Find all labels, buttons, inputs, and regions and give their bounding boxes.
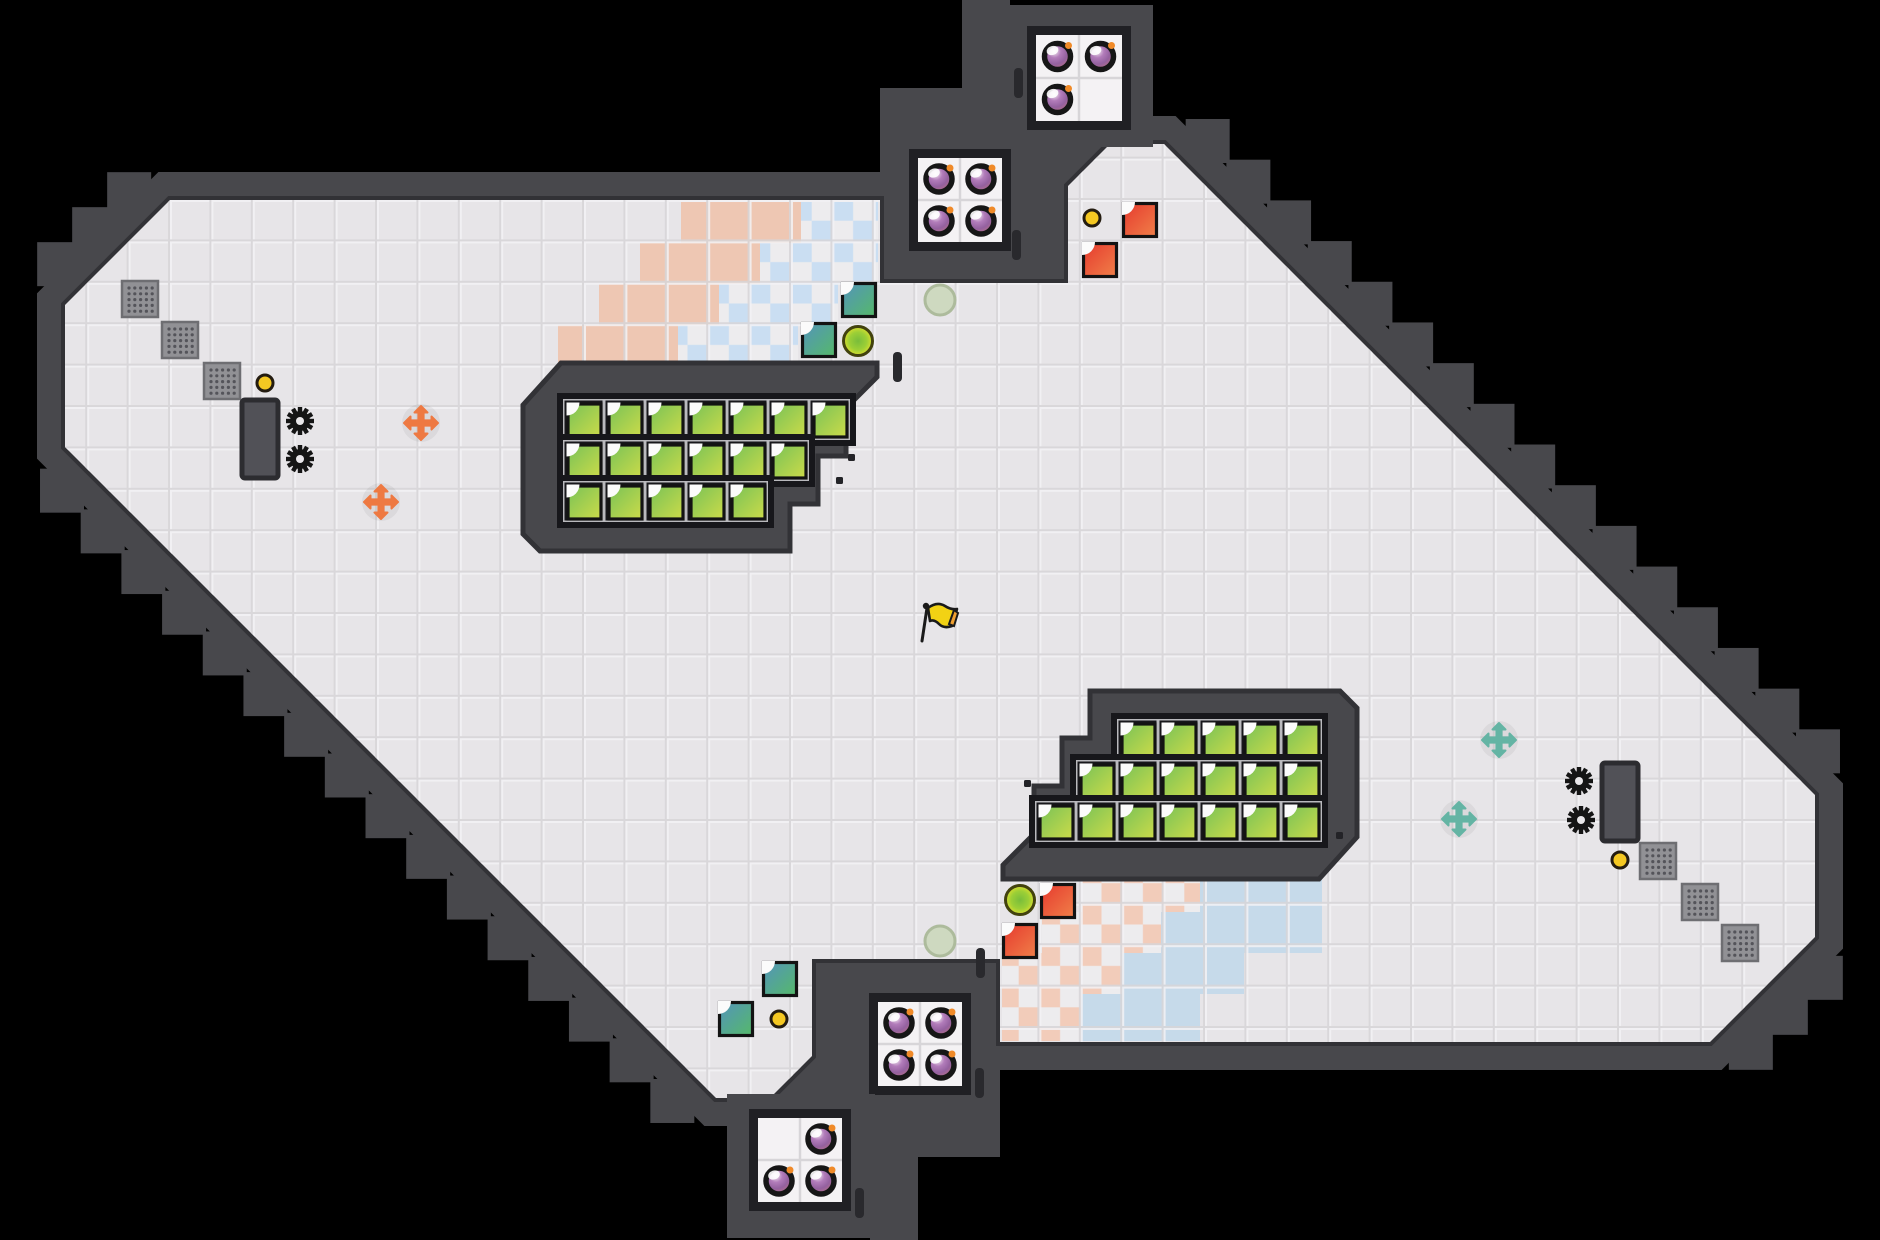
bomb-room (909, 149, 1011, 251)
wall-block (870, 1150, 918, 1240)
bomb-fuse (787, 1167, 794, 1174)
green-tile (1244, 805, 1279, 840)
wall-step (325, 753, 369, 797)
bomb-fuse (1065, 42, 1072, 49)
wall-notch (1012, 230, 1021, 260)
bomb-fuse (949, 1051, 956, 1058)
game-map-canvas[interactable] (0, 0, 1880, 1240)
wall-step (1633, 567, 1677, 611)
bomb-icon (928, 1051, 956, 1079)
green-tile (608, 485, 643, 520)
green-tile (1244, 723, 1279, 758)
wall-notch (855, 1188, 864, 1218)
green-tile (1244, 764, 1279, 799)
door-panel (1602, 763, 1638, 841)
wall-step (284, 713, 328, 757)
green-tile (1285, 805, 1320, 840)
coin-icon (257, 375, 273, 391)
bomb-room (727, 1094, 875, 1238)
screenshot-root (0, 0, 1880, 1240)
teal-tile (841, 282, 876, 317)
bomb-icon (1088, 42, 1116, 70)
green-tile (649, 444, 684, 479)
wall-step (107, 172, 151, 216)
green-tile (1080, 805, 1115, 840)
pressure-plate (925, 926, 955, 956)
wall-step (488, 916, 532, 960)
wall-step (1389, 322, 1433, 366)
wall-step (610, 1038, 654, 1082)
bomb-icon (1045, 42, 1073, 70)
green-tile (1285, 764, 1320, 799)
bomb-icon (808, 1167, 836, 1195)
wall-step (528, 957, 572, 1001)
grate-icon (122, 281, 158, 317)
bomb-room (1005, 5, 1153, 147)
wall-step (203, 631, 247, 675)
bomb-icon (926, 165, 954, 193)
green-tile (690, 485, 725, 520)
green-tile (567, 444, 602, 479)
green-tile (1121, 805, 1156, 840)
green-tile (1121, 723, 1156, 758)
bomb-icon (968, 165, 996, 193)
bomb-fuse (829, 1167, 836, 1174)
coin-icon (1084, 210, 1100, 226)
teal-tile (762, 961, 797, 996)
green-tile (690, 444, 725, 479)
bomb-fuse (907, 1009, 914, 1016)
green-tile (731, 403, 766, 438)
wall-dot (836, 477, 843, 484)
pressure-plate (925, 285, 955, 315)
wall-step (1755, 689, 1799, 733)
wall-step (1796, 729, 1840, 773)
wall-step (1552, 485, 1596, 529)
wall-step (1226, 160, 1270, 204)
wall-block (962, 0, 1010, 92)
bomb-icon (808, 1125, 836, 1153)
coin-icon (771, 1011, 787, 1027)
wall-step (1674, 607, 1718, 651)
wall-step (1267, 200, 1311, 244)
red-tile (1002, 923, 1037, 958)
wall-dot (1024, 780, 1031, 787)
wall-step (650, 1079, 694, 1123)
green-tile (1080, 764, 1115, 799)
green-tile (649, 485, 684, 520)
bomb-icon (968, 207, 996, 235)
bomb-icon (928, 1009, 956, 1037)
wall-step (1308, 241, 1352, 285)
green-tile (1121, 764, 1156, 799)
wall-step (243, 672, 287, 716)
green-tile (1203, 764, 1238, 799)
green-tile (1162, 764, 1197, 799)
wall-step (447, 876, 491, 920)
bomb-fuse (989, 207, 996, 214)
wall-step (81, 509, 125, 553)
wall-notch (976, 948, 985, 978)
grate-icon (204, 363, 240, 399)
button-icon (844, 327, 873, 356)
bomb-icon (766, 1167, 794, 1195)
bomb-fuse (829, 1125, 836, 1132)
green-tile (813, 403, 848, 438)
wall-dot (1336, 832, 1343, 839)
grate-icon (1722, 925, 1758, 961)
grate-icon (1682, 884, 1718, 920)
button-icon (1006, 886, 1035, 915)
bomb-fuse (1065, 85, 1072, 92)
wall-step (1186, 119, 1230, 163)
wall-step (1348, 282, 1392, 326)
wall-dot (848, 454, 855, 461)
red-tile (1082, 242, 1117, 277)
wall-step (1430, 363, 1474, 407)
green-tile (649, 403, 684, 438)
teal-tile (718, 1001, 753, 1036)
green-tile (608, 403, 643, 438)
red-tile (1122, 202, 1157, 237)
coin-icon (1612, 852, 1628, 868)
room-grid-line (878, 1043, 962, 1046)
wall-step (121, 550, 165, 594)
bomb-fuse (949, 1009, 956, 1016)
move-arrows-icon (362, 483, 400, 521)
green-tile (1203, 723, 1238, 758)
green-tile (1162, 723, 1197, 758)
bomb-fuse (947, 165, 954, 172)
green-tile (1162, 805, 1197, 840)
wall-step (1511, 445, 1555, 489)
room-grid-line (918, 199, 1002, 202)
wall-step (406, 835, 450, 879)
wall-notch (975, 1068, 984, 1098)
green-tile (1285, 723, 1320, 758)
grate-icon (1640, 843, 1676, 879)
green-tile (731, 485, 766, 520)
green-tile (772, 403, 807, 438)
green-tile (1203, 805, 1238, 840)
bomb-fuse (989, 165, 996, 172)
room-grid-line (1036, 77, 1122, 80)
room-grid-line (758, 1159, 842, 1162)
bomb-icon (886, 1051, 914, 1079)
move-arrows-icon (1480, 721, 1518, 759)
move-arrows-icon (1440, 800, 1478, 838)
wall-notch (1014, 68, 1023, 98)
bomb-icon (1045, 85, 1073, 113)
wall-step (40, 469, 84, 513)
wall-notch (893, 352, 902, 382)
red-tile (1040, 883, 1075, 918)
bomb-fuse (907, 1051, 914, 1058)
wall-step (162, 591, 206, 635)
green-tile (772, 444, 807, 479)
green-tile (731, 444, 766, 479)
green-tile (567, 485, 602, 520)
green-tile (1039, 805, 1074, 840)
green-tile (690, 403, 725, 438)
move-arrows-icon (402, 404, 440, 442)
wall-step (1729, 1026, 1773, 1070)
bomb-fuse (1108, 42, 1115, 49)
green-tile (608, 444, 643, 479)
wall-step (569, 998, 613, 1042)
green-tile (567, 403, 602, 438)
wall-step (1470, 404, 1514, 448)
door-panel (242, 400, 278, 478)
bomb-icon (926, 207, 954, 235)
bomb-room (869, 993, 971, 1095)
bomb-fuse (947, 207, 954, 214)
wall-step (1593, 526, 1637, 570)
bomb-icon (886, 1009, 914, 1037)
grate-icon (162, 322, 198, 358)
teal-tile (801, 322, 836, 357)
wall-step (366, 794, 410, 838)
wall-step (1715, 648, 1759, 692)
